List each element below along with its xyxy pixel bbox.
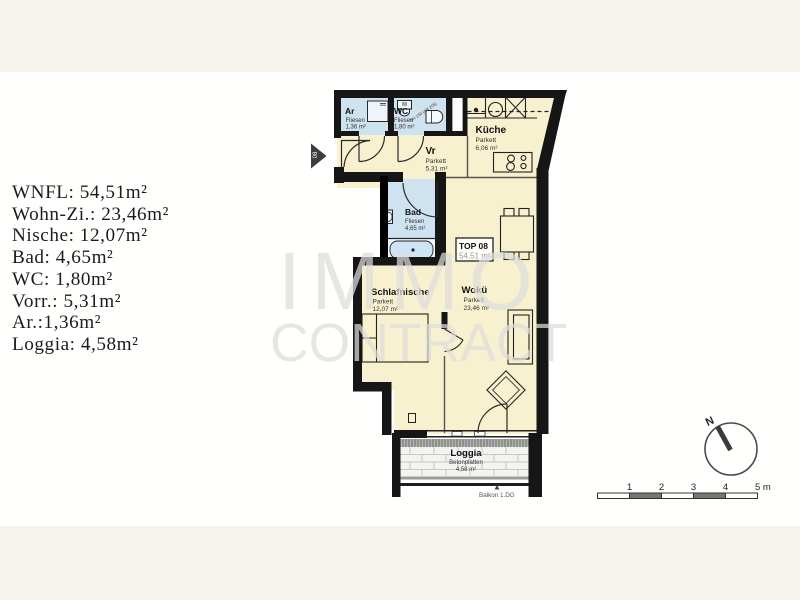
svg-text:1: 1	[627, 482, 632, 493]
svg-text:Loggia: Loggia	[450, 448, 482, 459]
svg-text:Küche: Küche	[476, 125, 507, 136]
svg-text:6,06 m²: 6,06 m²	[476, 145, 499, 152]
svg-text:Parkett: Parkett	[426, 158, 447, 165]
svg-text:4,65 m²: 4,65 m²	[405, 226, 425, 232]
svg-text:3: 3	[691, 482, 696, 493]
svg-text:5,31 m²: 5,31 m²	[426, 166, 449, 173]
svg-text:Betonplatten: Betonplatten	[449, 460, 483, 466]
svg-text:WC: WC	[394, 106, 408, 116]
svg-text:1,36 m²: 1,36 m²	[346, 125, 366, 131]
svg-text:Balkon 1.DG: Balkon 1.DG	[479, 492, 515, 499]
svg-text:Fliesen: Fliesen	[346, 118, 365, 124]
svg-text:4: 4	[723, 482, 728, 493]
svg-text:2: 2	[659, 482, 664, 493]
svg-text:Fliesen: Fliesen	[405, 219, 424, 225]
svg-text:CONTRACT: CONTRACT	[270, 314, 567, 373]
svg-text:5 m: 5 m	[755, 482, 771, 493]
svg-text:N: N	[704, 415, 716, 429]
svg-text:Fliesen: Fliesen	[394, 118, 413, 124]
svg-text:08: 08	[313, 151, 319, 158]
svg-text:Bad: Bad	[405, 207, 421, 217]
svg-text:Parkett: Parkett	[476, 137, 497, 144]
svg-text:Ar: Ar	[345, 106, 355, 116]
svg-text:4,58 m²: 4,58 m²	[456, 467, 476, 473]
svg-text:1,80 m²: 1,80 m²	[394, 125, 414, 131]
svg-text:Vr: Vr	[426, 146, 436, 157]
